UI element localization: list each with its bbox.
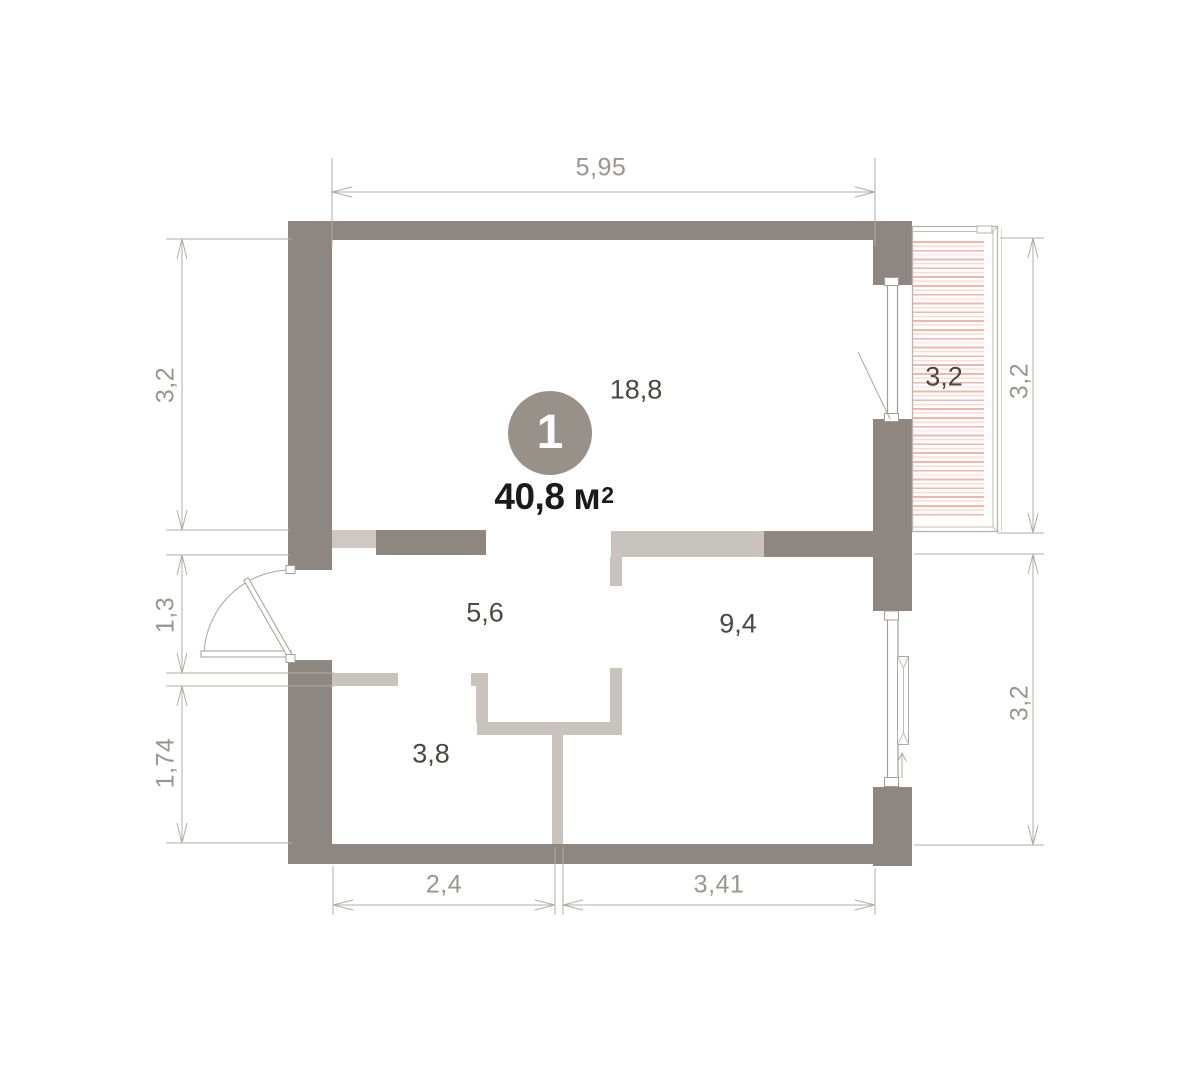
dim-right-lower-label: 3,2 (1006, 685, 1035, 721)
room-bedroom-area-label: 9,4 (719, 609, 757, 640)
dim-right-upper-label: 3,2 (1006, 363, 1035, 399)
dim-left-middle-label: 1,3 (152, 597, 181, 633)
door-hinge-bottom (286, 655, 295, 663)
door-leaf-diagonal (244, 578, 292, 657)
bedroom-window (885, 611, 909, 787)
total-area-unit: м (573, 476, 600, 517)
room-bathroom-area-label: 3,8 (412, 739, 450, 770)
total-area-label: 40,8м2 (494, 476, 613, 518)
dim-bottom-right-label: 3,41 (694, 871, 745, 900)
floor-plan: 5,95 3,2 1,3 1,74 3,2 3,2 2,4 3,41 18,8 … (0, 0, 1200, 1065)
door-hinge-top (286, 566, 295, 574)
window-open-arrow (898, 753, 906, 778)
room-living-area-label: 18,8 (610, 375, 663, 406)
door-swing-indicator (858, 352, 890, 419)
room-hallway-area-label: 5,6 (466, 598, 504, 629)
door-leaf-open (201, 651, 291, 657)
unit-number: 1 (537, 409, 564, 457)
dim-top-label: 5,95 (576, 154, 627, 183)
balcony-door (858, 278, 899, 422)
unit-number-badge: 1 (508, 391, 592, 475)
total-area-value: 40,8 (494, 476, 564, 517)
room-balcony-area-label: 3,2 (925, 362, 963, 393)
dim-bottom-left-label: 2,4 (426, 871, 462, 900)
total-area-power: 2 (601, 482, 613, 508)
dim-left-upper-label: 3,2 (152, 367, 181, 403)
dim-left-lower-label: 1,74 (152, 738, 181, 789)
entrance-door (201, 566, 295, 663)
